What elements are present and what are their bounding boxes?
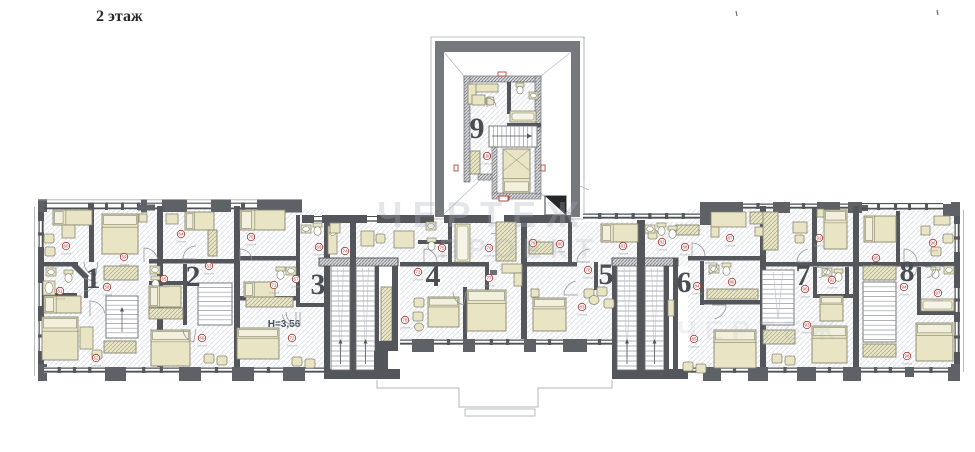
svg-text:73: 73 bbox=[416, 270, 421, 275]
svg-text:3: 3 bbox=[311, 268, 326, 301]
svg-text:91: 91 bbox=[817, 236, 822, 241]
svg-text:96: 96 bbox=[931, 241, 936, 246]
svg-text:Спальня: Спальня bbox=[176, 240, 187, 244]
svg-text:92: 92 bbox=[830, 278, 835, 283]
svg-text:ЧЕРТЕЖ: ЧЕРТЕЖ bbox=[677, 315, 843, 346]
svg-text:95: 95 bbox=[874, 256, 879, 261]
svg-text:Спальня: Спальня bbox=[484, 284, 495, 288]
svg-text:78: 78 bbox=[403, 318, 408, 323]
svg-text:85: 85 bbox=[692, 337, 697, 342]
svg-text:67: 67 bbox=[294, 277, 299, 282]
svg-text:Спальня: Спальня bbox=[680, 253, 691, 257]
svg-text:Спальня: Спальня bbox=[119, 263, 130, 267]
svg-text:Спальня: Спальня bbox=[689, 345, 700, 349]
svg-text:2 этаж: 2 этаж bbox=[96, 8, 143, 25]
svg-text:60: 60 bbox=[64, 244, 69, 249]
svg-text:83: 83 bbox=[580, 305, 585, 310]
svg-text:69: 69 bbox=[317, 245, 322, 250]
svg-text:Спальня: Спальня bbox=[583, 276, 594, 280]
svg-text:4: 4 bbox=[426, 260, 441, 293]
svg-text:58: 58 bbox=[105, 285, 110, 290]
svg-text:Спальня: Спальня bbox=[902, 362, 913, 366]
svg-text:Спальня: Спальня bbox=[484, 254, 495, 258]
svg-text:76: 76 bbox=[487, 246, 492, 251]
svg-text:Спальня: Спальня bbox=[204, 272, 215, 276]
svg-text:81: 81 bbox=[621, 244, 626, 249]
svg-text:Спальня: Спальня bbox=[340, 257, 351, 261]
svg-text:75: 75 bbox=[440, 246, 445, 251]
svg-text:72: 72 bbox=[290, 336, 295, 341]
svg-text:Спальня: Спальня bbox=[291, 285, 302, 289]
svg-text:97: 97 bbox=[936, 291, 941, 296]
svg-text:1: 1 bbox=[86, 262, 101, 295]
svg-text:Спальня: Спальня bbox=[802, 331, 813, 335]
svg-text:Спальня: Спальня bbox=[413, 278, 424, 282]
svg-text:86: 86 bbox=[730, 280, 735, 285]
svg-text:ЧЕРТЕЖ: ЧЕРТЕЖ bbox=[377, 194, 588, 235]
svg-text:79: 79 bbox=[531, 241, 536, 246]
svg-text:7: 7 bbox=[796, 259, 811, 292]
svg-text:Спальня: Спальня bbox=[555, 250, 566, 254]
svg-text:Спальня: Спальня bbox=[725, 244, 736, 248]
svg-text:Спальня: Спальня bbox=[727, 288, 738, 292]
svg-text:2: 2 bbox=[186, 260, 201, 293]
svg-text:Спальня: Спальня bbox=[437, 254, 448, 258]
svg-text:62: 62 bbox=[94, 356, 99, 361]
svg-text:Спальня: Спальня bbox=[287, 344, 298, 348]
svg-text:Спальня: Спальня bbox=[269, 291, 280, 295]
svg-text:5: 5 bbox=[599, 258, 614, 291]
svg-text:63: 63 bbox=[207, 264, 212, 269]
svg-text:Спальня: Спальня bbox=[246, 243, 257, 247]
svg-text:Спальня: Спальня bbox=[657, 248, 668, 252]
svg-text:9: 9 bbox=[470, 112, 485, 145]
svg-text:77: 77 bbox=[487, 276, 492, 281]
svg-text:61: 61 bbox=[58, 289, 63, 294]
svg-text:Спальня: Спальня bbox=[692, 292, 703, 296]
svg-text:88: 88 bbox=[683, 245, 688, 250]
svg-text:65: 65 bbox=[162, 277, 167, 282]
svg-text:Спальня: Спальня bbox=[827, 286, 838, 290]
svg-text:70: 70 bbox=[249, 235, 254, 240]
svg-text:82: 82 bbox=[660, 240, 665, 245]
svg-text:Спальня: Спальня bbox=[618, 252, 629, 256]
svg-text:Спальня: Спальня bbox=[933, 299, 944, 303]
svg-text:80: 80 bbox=[558, 242, 563, 247]
svg-text:64: 64 bbox=[179, 232, 184, 237]
svg-text:Спальня: Спальня bbox=[314, 253, 325, 257]
svg-text:84: 84 bbox=[695, 284, 700, 289]
svg-text:8: 8 bbox=[900, 255, 915, 288]
svg-text:Спальня: Спальня bbox=[61, 252, 72, 256]
svg-text:74: 74 bbox=[343, 249, 348, 254]
svg-text:66: 66 bbox=[200, 336, 205, 341]
svg-text:Спальня: Спальня bbox=[55, 297, 66, 301]
svg-text:Спальня: Спальня bbox=[800, 295, 811, 299]
svg-text:Спальня: Спальня bbox=[577, 313, 588, 317]
svg-text:Спальня: Спальня bbox=[482, 162, 493, 166]
svg-text:Спальня: Спальня bbox=[91, 364, 102, 368]
svg-text:Спальня: Спальня bbox=[159, 285, 170, 289]
svg-text:93: 93 bbox=[805, 323, 810, 328]
svg-text:Спальня: Спальня bbox=[528, 249, 539, 253]
svg-text:Спальня: Спальня bbox=[899, 293, 910, 297]
svg-text:Спальня: Спальня bbox=[814, 244, 825, 248]
svg-text:71: 71 bbox=[272, 283, 277, 288]
svg-text:Спальня: Спальня bbox=[871, 264, 882, 268]
svg-text:59: 59 bbox=[122, 255, 127, 260]
svg-text:Спальня: Спальня bbox=[928, 249, 939, 253]
svg-text:Спальня: Спальня bbox=[102, 293, 113, 297]
svg-text:78: 78 bbox=[586, 268, 591, 273]
svg-text:6: 6 bbox=[677, 266, 692, 299]
svg-text:100: 100 bbox=[483, 154, 491, 159]
svg-text:98: 98 bbox=[905, 354, 910, 359]
svg-text:Спальня: Спальня bbox=[197, 344, 208, 348]
svg-text:87: 87 bbox=[728, 236, 733, 241]
svg-text:Спальня: Спальня bbox=[400, 326, 411, 330]
svg-text:ПРОЕКТ: ПРОЕКТ bbox=[439, 233, 601, 264]
